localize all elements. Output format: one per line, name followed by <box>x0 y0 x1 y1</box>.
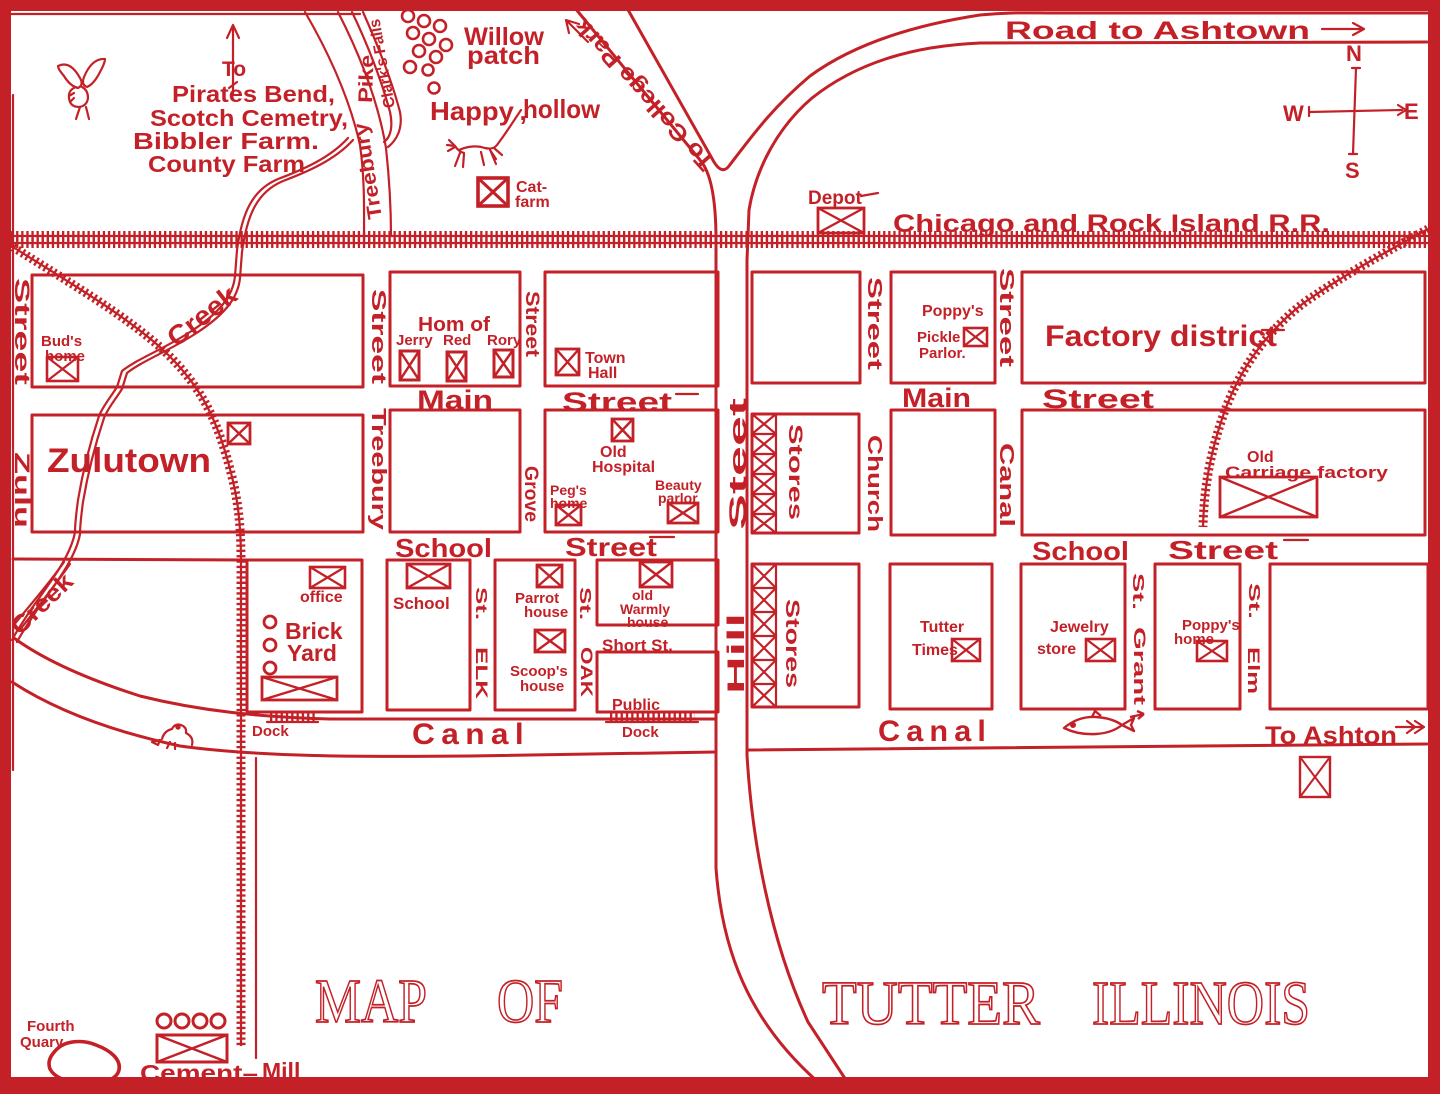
svg-text:home: home <box>45 348 85 365</box>
svg-text:Public: Public <box>612 697 660 714</box>
svg-text:To: To <box>222 58 246 81</box>
svg-text:Chicago and Rock Island R.R.: Chicago and Rock Island R.R. <box>893 210 1330 238</box>
svg-text:house: house <box>520 678 564 695</box>
svg-text:Red: Red <box>443 332 471 349</box>
svg-text:Carriage factory: Carriage factory <box>1225 463 1389 482</box>
svg-text:Factory district: Factory district <box>1045 320 1277 353</box>
svg-text:Stores: Stores <box>784 424 805 520</box>
svg-text:Quary: Quary <box>20 1034 64 1051</box>
svg-text:house: house <box>627 614 668 630</box>
svg-text:Dock: Dock <box>622 724 659 741</box>
svg-text:Elm: Elm <box>1244 647 1263 694</box>
svg-text:Main: Main <box>902 383 971 413</box>
svg-text:ELK: ELK <box>472 647 491 700</box>
svg-text:St.: St. <box>472 587 489 620</box>
svg-text:Treebury: Treebury <box>367 408 389 531</box>
svg-text:Street: Street <box>10 278 33 385</box>
svg-text:Times: Times <box>912 642 958 659</box>
svg-text:Tutter: Tutter <box>920 619 964 636</box>
svg-text:Hospital: Hospital <box>592 459 655 476</box>
svg-text:Stores: Stores <box>781 599 802 688</box>
svg-text:Grant: Grant <box>1130 627 1149 706</box>
svg-text:Hill: Hill <box>723 613 750 694</box>
svg-text:Steet: Steet <box>725 398 752 530</box>
svg-text:TUTTER: TUTTER <box>822 970 1041 1038</box>
svg-text:ILLINOIS: ILLINOIS <box>1092 970 1310 1038</box>
svg-text:Canal: Canal <box>412 718 530 751</box>
svg-text:Zulutown: Zulutown <box>47 442 211 480</box>
svg-text:To Ashton: To Ashton <box>1265 722 1397 750</box>
svg-text:N: N <box>1346 41 1362 66</box>
svg-text:Road to Ashtown: Road to Ashtown <box>1005 17 1310 45</box>
svg-text:farm: farm <box>515 194 550 211</box>
svg-text:Street: Street <box>863 277 885 371</box>
svg-text:Poppy's: Poppy's <box>922 303 984 320</box>
svg-text:Yard: Yard <box>287 640 337 666</box>
svg-text:School: School <box>1032 536 1129 566</box>
svg-text:St.: St. <box>1245 583 1262 619</box>
svg-text:Cement–: Cement– <box>140 1060 258 1086</box>
svg-text:OAK: OAK <box>577 647 596 698</box>
svg-text:store: store <box>1037 641 1076 658</box>
svg-text:home: home <box>1174 631 1214 648</box>
svg-text:patch: patch <box>467 42 540 70</box>
svg-text:Depot: Depot <box>808 188 863 209</box>
svg-text:Street: Street <box>995 268 1017 368</box>
svg-text:office: office <box>300 589 343 606</box>
svg-text:Pirates Bend,: Pirates Bend, <box>172 81 335 107</box>
svg-text:house: house <box>524 604 568 621</box>
svg-text:Dock: Dock <box>252 723 289 740</box>
svg-text:E: E <box>1404 99 1419 124</box>
svg-text:S: S <box>1345 158 1360 183</box>
svg-text:Main: Main <box>417 385 493 415</box>
svg-text:St.: St. <box>576 587 593 620</box>
svg-text:Street: Street <box>565 532 657 562</box>
svg-text:Street: Street <box>521 291 542 358</box>
svg-text:Street: Street <box>1042 384 1154 414</box>
svg-text:Fourth: Fourth <box>27 1018 74 1035</box>
svg-text:parlor: parlor <box>658 490 698 506</box>
svg-text:St.: St. <box>1129 573 1146 610</box>
svg-text:County Farm: County Farm <box>148 151 305 177</box>
svg-text:Parlor.: Parlor. <box>919 345 966 362</box>
svg-text:W: W <box>1283 101 1304 126</box>
svg-text:Pickle: Pickle <box>917 329 960 346</box>
svg-text:Mill: Mill <box>262 1058 300 1084</box>
svg-text:School: School <box>395 533 492 563</box>
svg-text:School: School <box>393 594 450 613</box>
svg-text:Street: Street <box>367 289 389 385</box>
svg-text:MAP: MAP <box>315 968 427 1036</box>
svg-text:Short St.: Short St. <box>602 636 673 655</box>
svg-text:Jerry: Jerry <box>396 332 433 349</box>
svg-text:Canal: Canal <box>995 443 1017 527</box>
svg-text:Hall: Hall <box>588 365 617 382</box>
svg-text:home: home <box>550 495 588 511</box>
svg-text:Zulu: Zulu <box>10 452 33 528</box>
svg-text:Street: Street <box>562 387 672 417</box>
svg-text:Jewelry: Jewelry <box>1050 619 1109 636</box>
svg-text:Canal: Canal <box>878 715 992 748</box>
svg-text:Street: Street <box>1168 535 1278 565</box>
svg-text:Church: Church <box>863 435 885 532</box>
svg-text:OF: OF <box>497 968 563 1036</box>
svg-text:hollow: hollow <box>523 94 601 124</box>
svg-text:Rory: Rory <box>487 332 522 349</box>
svg-text:Grove: Grove <box>520 466 541 522</box>
